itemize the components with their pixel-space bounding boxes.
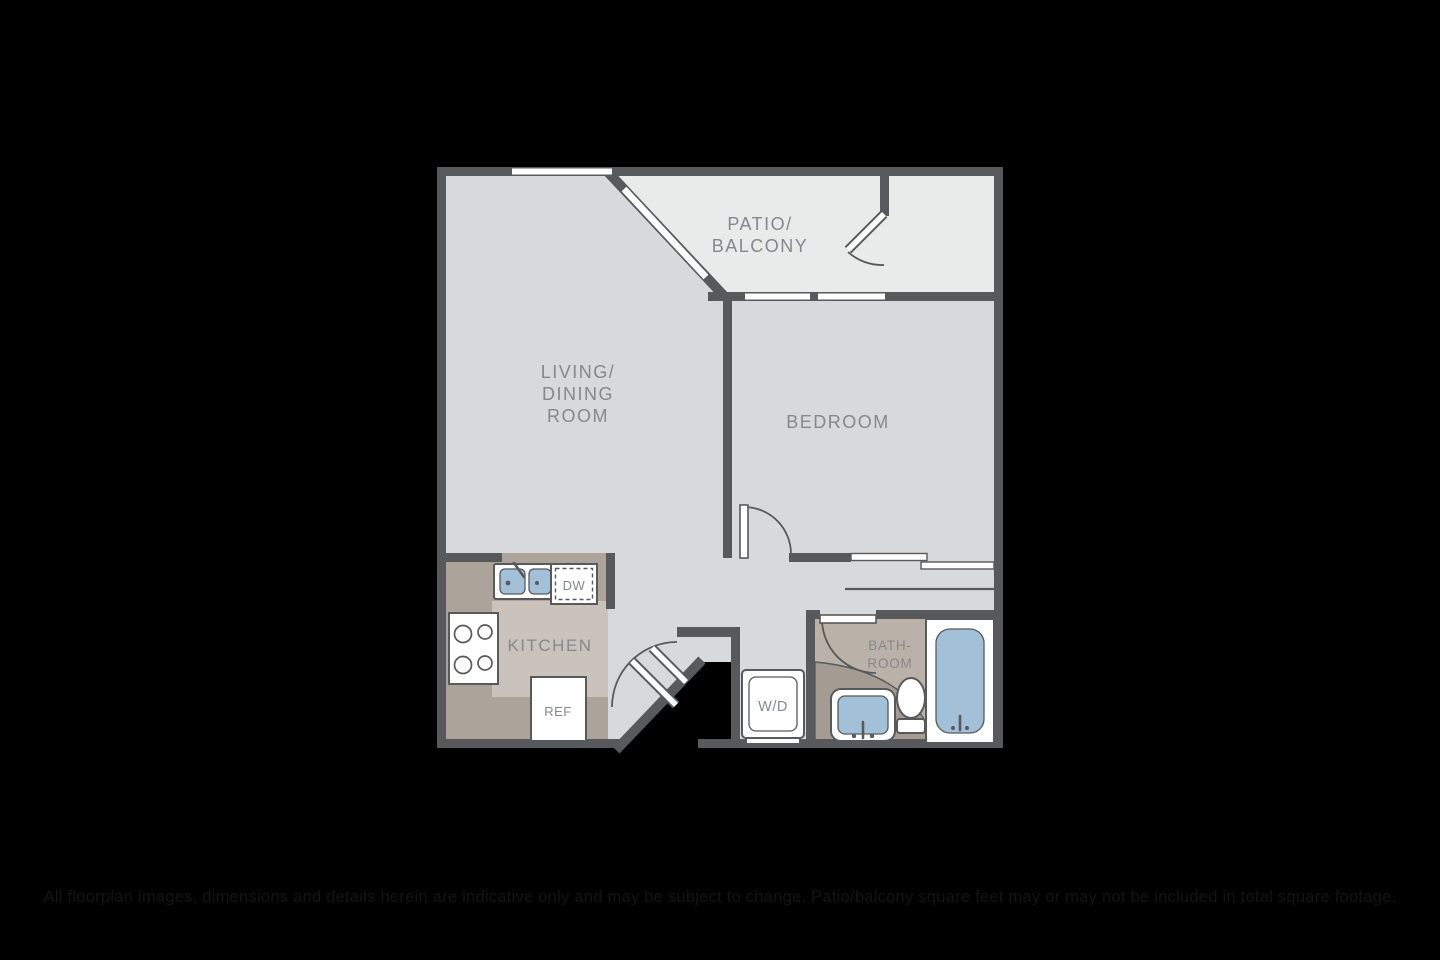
bedroom-door-leaf — [740, 505, 748, 558]
disclaimer-text: All floorplan images, dimensions and det… — [0, 888, 1440, 907]
bedroom-window-2 — [818, 294, 885, 300]
sink-drain-right — [535, 581, 539, 585]
wall-left — [437, 167, 446, 748]
patio-label-line2: BALCONY — [712, 236, 809, 256]
wall-patio-nook-stub — [880, 176, 889, 216]
kitchen-sink-bowl-right — [529, 569, 551, 594]
wall-kitchen-right — [606, 553, 615, 609]
refrigerator-label: REF — [544, 704, 572, 719]
burner-icon — [478, 625, 492, 639]
patio-label-line1: PATIO/ — [727, 214, 792, 234]
wall-bath-top-right — [876, 610, 1003, 619]
wall-entry-cap — [677, 627, 740, 637]
washer-dryer-plinth — [746, 738, 800, 744]
living-label-line2: DINING — [542, 384, 614, 404]
tub-handle-icon — [965, 726, 969, 730]
vanity-handle-icon — [870, 734, 874, 738]
washer-dryer-label: W/D — [758, 699, 788, 715]
floors — [442, 172, 998, 752]
wall-bottom-kitchen — [437, 739, 620, 748]
burner-icon — [478, 656, 492, 670]
bedroom-window-1 — [745, 294, 810, 300]
tub-handle-icon — [951, 726, 955, 730]
floor-plan: PATIO/ BALCONY LIVING/ DINING ROOM BEDRO… — [0, 0, 1440, 960]
kitchen-label: KITCHEN — [507, 636, 592, 655]
toilet-tank — [897, 719, 925, 733]
wall-living-bedroom — [723, 292, 732, 558]
bedroom-label: BEDROOM — [786, 412, 890, 432]
toilet-bowl — [897, 678, 925, 718]
bathroom-label-line2: ROOM — [867, 656, 912, 671]
burner-icon — [455, 626, 472, 643]
stove — [449, 613, 498, 684]
sink-drain-left — [506, 581, 511, 586]
wall-kitchen-top-stub — [437, 553, 502, 562]
closet-sliding-door-1 — [851, 554, 927, 561]
wall-laundry-nook-left — [731, 637, 740, 748]
wall-bath-left — [806, 610, 815, 748]
living-window — [512, 169, 612, 175]
wall-right — [994, 167, 1003, 748]
vanity-handle-icon — [852, 734, 856, 738]
living-label-line3: ROOM — [547, 406, 609, 426]
dishwasher-label: DW — [563, 578, 586, 593]
wall-bedroom-bottom — [789, 553, 851, 562]
bathroom-label-line1: BATH- — [868, 638, 912, 653]
floorplan-page: PATIO/ BALCONY LIVING/ DINING ROOM BEDRO… — [0, 0, 1440, 960]
living-label-line1: LIVING/ — [541, 362, 616, 382]
bathroom-door-leaf — [820, 615, 876, 623]
closet-sliding-door-2 — [921, 562, 994, 569]
burner-icon — [455, 657, 472, 674]
